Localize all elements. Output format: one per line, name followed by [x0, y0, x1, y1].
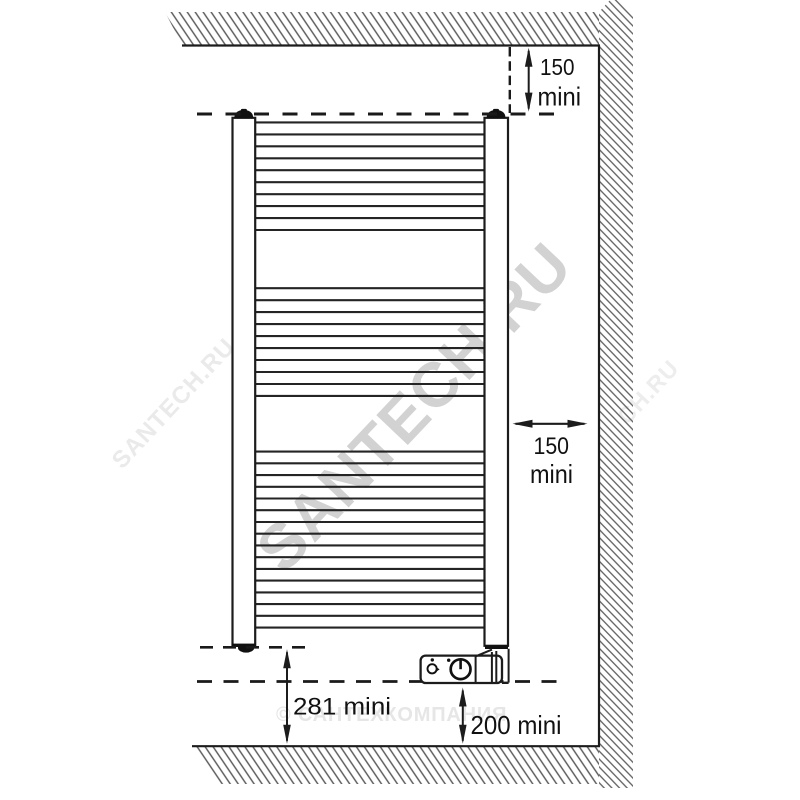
svg-text:281 mini: 281 mini [293, 694, 391, 721]
svg-text:150: 150 [534, 433, 570, 460]
svg-text:mini: mini [538, 82, 582, 112]
svg-text:150: 150 [540, 54, 575, 80]
svg-text:200 mini: 200 mini [471, 710, 562, 740]
svg-text:mini: mini [530, 459, 573, 489]
